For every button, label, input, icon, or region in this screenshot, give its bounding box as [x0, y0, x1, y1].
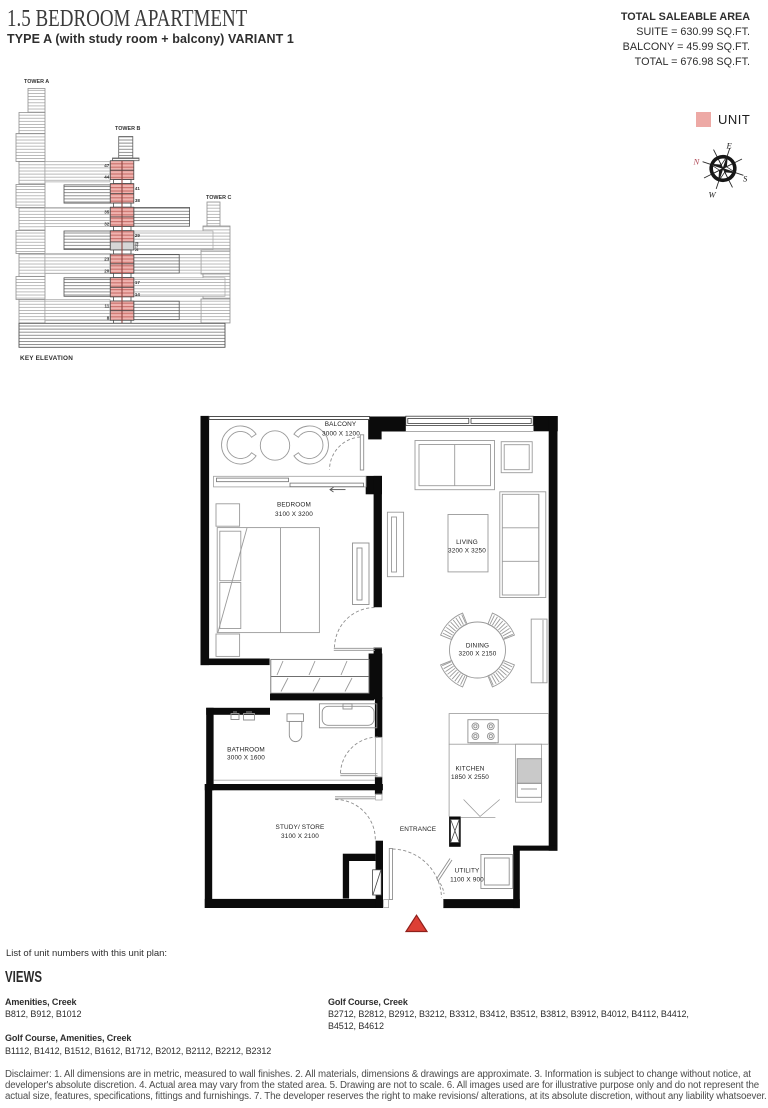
svg-text:3100 X 2100: 3100 X 2100 [281, 833, 319, 840]
svg-text:3000 X 1200: 3000 X 1200 [322, 431, 360, 438]
svg-text:BEDROOM: BEDROOM [277, 502, 311, 509]
svg-text:STUDY/ STORE: STUDY/ STORE [276, 824, 325, 831]
svg-text:3100 X 3200: 3100 X 3200 [275, 511, 313, 518]
svg-text:1850 X 2550: 1850 X 2550 [451, 774, 489, 781]
svg-text:1100 X 900: 1100 X 900 [450, 877, 484, 884]
svg-text:3200 X 2150: 3200 X 2150 [459, 651, 497, 658]
svg-text:BALCONY: BALCONY [325, 421, 357, 428]
svg-text:DINING: DINING [466, 643, 489, 650]
svg-text:ENTRANCE: ENTRANCE [400, 826, 436, 833]
svg-text:3000 X 1600: 3000 X 1600 [227, 755, 265, 762]
svg-text:UTILITY: UTILITY [455, 868, 480, 875]
svg-text:BATHROOM: BATHROOM [227, 747, 265, 754]
svg-text:LIVING: LIVING [456, 539, 478, 546]
svg-text:3200 X 3250: 3200 X 3250 [448, 547, 486, 554]
svg-text:KITCHEN: KITCHEN [455, 766, 484, 773]
